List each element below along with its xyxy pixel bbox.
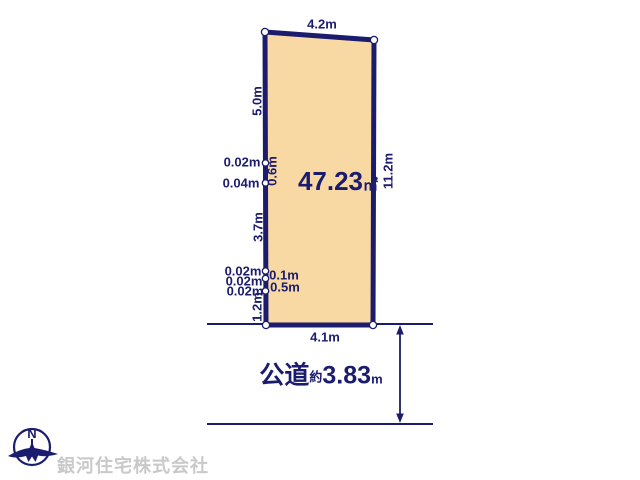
company-watermark: 銀河住宅株式会社 [57,452,209,478]
dim-right-side: 11.2m [382,153,395,189]
dim-offset-2: 0.04m [223,177,260,190]
dim-bottom-width: 4.1m [310,331,340,344]
dim-left-mid: 3.7m [252,212,265,242]
road-width-arrow [396,325,404,423]
dim-left-upper: 5.0m [251,86,264,116]
diagram-canvas: N [0,0,640,480]
road-type-label: 公道 [259,364,309,389]
boundary-dot [370,36,377,43]
parcel-area-unit: ㎡ [363,177,378,194]
road-approx-label: 約 [309,371,322,384]
road-width-unit: m [371,373,383,386]
boundary-dot [262,321,269,328]
boundary-dot [369,321,376,328]
plot-diagram: N 4.2m 5.0m 0.02m 0.6m 0.04m 11.2m 3.7m … [0,0,640,480]
boundary-dot [262,275,268,281]
dim-top-width: 4.2m [307,18,337,31]
dim-offset-1: 0.02m [224,156,261,169]
dim-left-seg-06: 0.6m [266,156,279,186]
road-width-value: 3.83 [322,364,371,389]
dim-left-lower: 1.2m [251,292,264,322]
boundary-dot [262,268,268,274]
road-label: 公道 約 3.83 m [259,364,382,389]
boundary-dot [261,28,268,35]
north-arrow-icon: N [8,426,58,465]
compass-north-label: N [27,426,36,441]
parcel-area-label: 47.23㎡ [298,168,378,194]
parcel-area-value: 47.23 [298,166,363,196]
dim-left-seg-05: 0.5m [270,281,300,294]
